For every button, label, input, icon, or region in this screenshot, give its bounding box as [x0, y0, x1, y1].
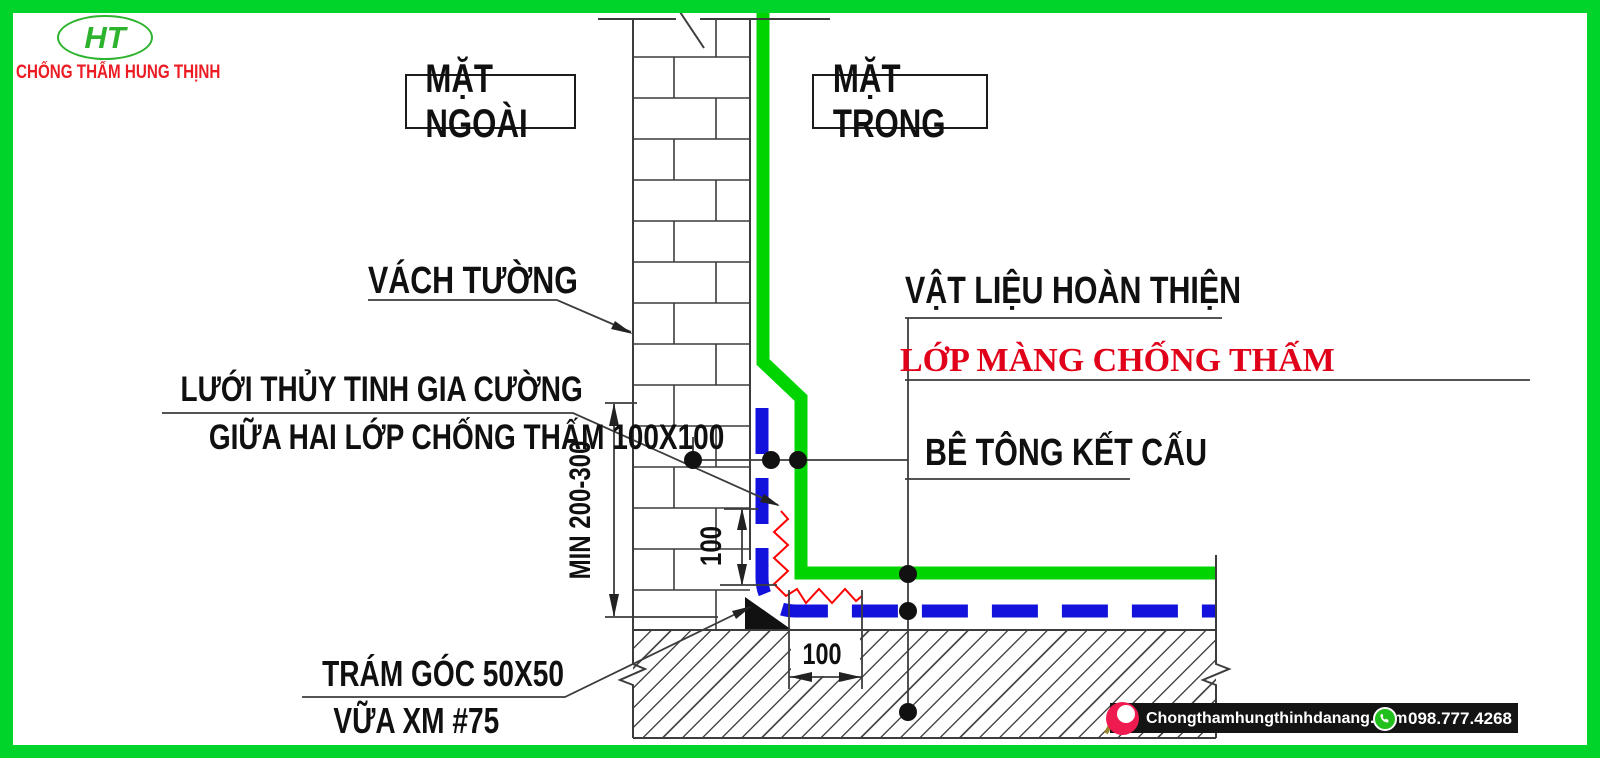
brick-pattern [633, 19, 750, 630]
dim-up-wall-return: 100 [695, 514, 727, 578]
website-link[interactable]: Chongthamhungthinhdanang.com [1146, 710, 1407, 728]
phone-number[interactable]: 098.777.4268 [1408, 709, 1512, 729]
corner-fill-callout-line2: VỮA XM #75 [288, 703, 544, 739]
pin-logo-dot [1117, 705, 1135, 723]
brand-logo: HT [57, 15, 153, 60]
wall-arrow [611, 321, 633, 334]
dim-floor-return: 100 [787, 640, 857, 670]
inside-face-label: MẶT TRONG [812, 74, 988, 129]
waterproofing-detail-page: HT CHỐNG THẤM HUNG THỊNH MẶT NGOÀI MẶT T… [0, 0, 1600, 758]
outside-face-label: MẶT NGOÀI [405, 74, 576, 129]
wall-callout: VÁCH TƯỜNG [368, 262, 630, 300]
brand-name: CHỐNG THẤM HUNG THỊNH [16, 62, 271, 84]
mesh-callout-line2: GIỮA HAI LỚP CHỐNG THẤM 100X100 [80, 420, 546, 455]
membrane-callout: LỚP MÀNG CHỐNG THẤM [900, 344, 1335, 378]
dim-min-wall-height: MIN 200-300 [564, 422, 600, 598]
arrowheads [609, 321, 861, 682]
whatsapp-icon[interactable] [1373, 707, 1397, 731]
wall-leader [368, 300, 631, 332]
slab-left-break [620, 630, 645, 738]
brand-monogram: HT [84, 20, 125, 56]
finish-material-callout: VẬT LIỆU HOÀN THIỆN [905, 272, 1325, 310]
mesh-zigzag-line [774, 511, 862, 603]
break-mark [676, 6, 704, 48]
mesh-callout-line1: LƯỚI THỦY TINH GIA CƯỜNG [80, 372, 546, 407]
phone-glyph [1378, 712, 1392, 726]
corner-fill-callout-line1: TRÁM GÓC 50X50 [288, 656, 544, 692]
structural-concrete-callout: BÊ TÔNG KẾT CẤU [925, 434, 1278, 472]
